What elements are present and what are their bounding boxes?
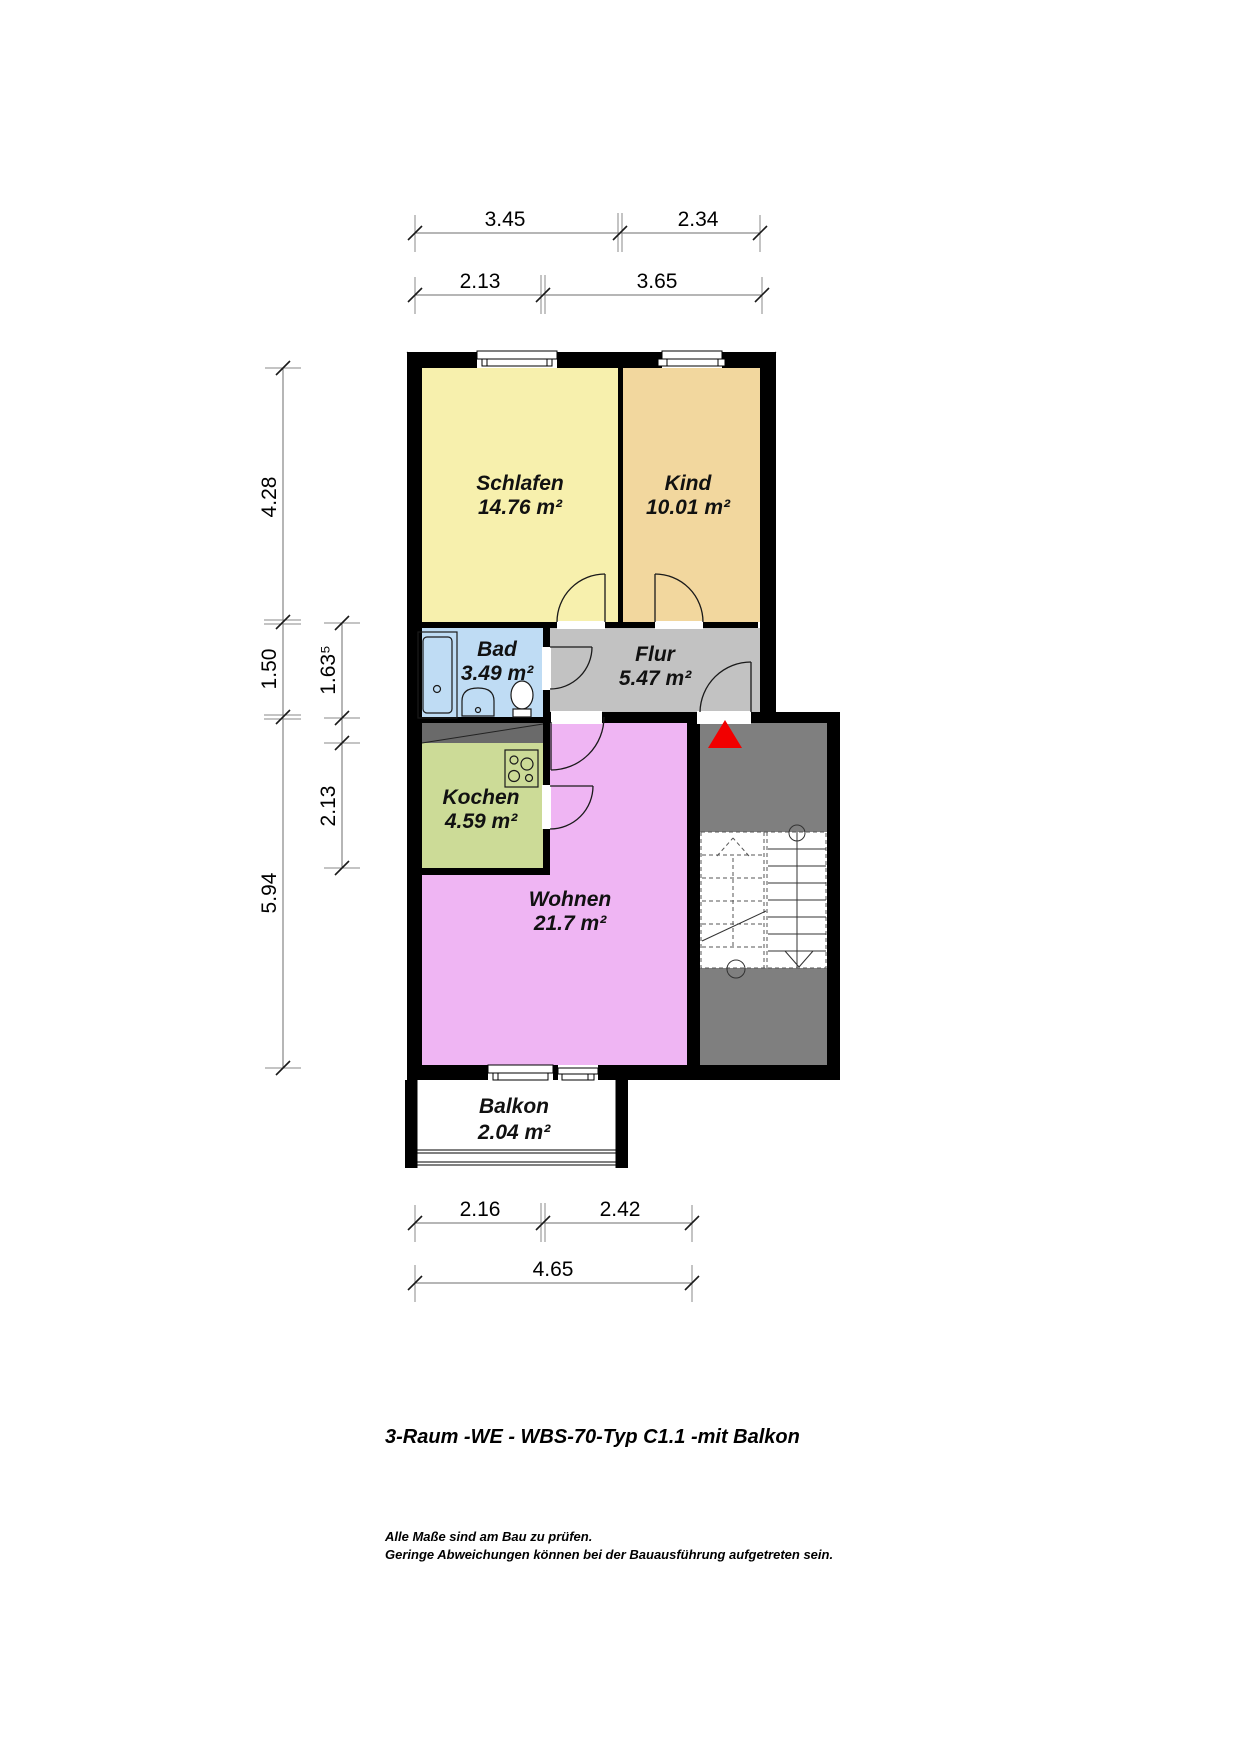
room-schlafen: [422, 368, 618, 622]
svg-text:2.13: 2.13: [460, 270, 501, 293]
svg-text:1.50: 1.50: [258, 649, 281, 690]
svg-text:2.16: 2.16: [460, 1198, 501, 1221]
window-kind: [658, 351, 725, 368]
label-kochen: Kochen: [442, 786, 519, 809]
dim-left-outer: 4.28 1.50 5.94: [258, 361, 301, 1075]
dim-left-inner: 1.63⁵ 2.13: [317, 616, 360, 875]
svg-text:3.45: 3.45: [485, 208, 526, 231]
label-flur: Flur: [635, 643, 676, 666]
dim-bottom-row1: 2.16 2.42: [408, 1198, 699, 1242]
label-kind: Kind: [665, 472, 713, 495]
balcony-window: [558, 1065, 598, 1080]
plan-title: 3-Raum -WE - WBS-70-Typ C1.1 -mit Balkon: [385, 1426, 800, 1448]
svg-text:5.94: 5.94: [258, 872, 281, 913]
dim-top-row1: 3.45 2.34: [408, 208, 767, 252]
room-kind: [623, 368, 760, 622]
svg-text:1.63⁵: 1.63⁵: [317, 645, 340, 695]
svg-text:4.65: 4.65: [533, 1258, 574, 1281]
svg-text:2.42: 2.42: [600, 1198, 641, 1221]
label-balkon: Balkon: [479, 1095, 549, 1118]
svg-text:2.13: 2.13: [317, 786, 340, 827]
area-schlafen: 14.76 m²: [478, 496, 563, 519]
duct-shaft: [422, 723, 543, 743]
label-schlafen: Schlafen: [476, 472, 564, 495]
svg-text:3.65: 3.65: [637, 270, 678, 293]
area-flur: 5.47 m²: [619, 667, 692, 690]
floor-plan-drawing: Schlafen 14.76 m² Kind 10.01 m² Bad 3.49…: [0, 0, 1240, 1754]
toilet-icon: [511, 681, 533, 717]
svg-text:2.34: 2.34: [678, 208, 719, 231]
window-schlafen: [477, 351, 557, 368]
stair-landing-lower: [700, 968, 827, 1065]
area-wohnen: 21.7 m²: [533, 912, 607, 935]
svg-text:4.28: 4.28: [258, 477, 281, 518]
note-line2: Geringe Abweichungen können bei der Baua…: [385, 1547, 833, 1562]
balcony-door: [488, 1065, 553, 1080]
floor-plan-page: Schlafen 14.76 m² Kind 10.01 m² Bad 3.49…: [0, 0, 1240, 1754]
area-bad: 3.49 m²: [461, 662, 534, 685]
area-balkon: 2.04 m²: [477, 1121, 551, 1144]
label-bad: Bad: [477, 638, 518, 661]
label-wohnen: Wohnen: [529, 888, 611, 911]
dim-top-row2: 2.13 3.65: [408, 270, 769, 314]
note-line1: Alle Maße sind am Bau zu prüfen.: [384, 1529, 592, 1544]
area-kochen: 4.59 m²: [444, 810, 518, 833]
area-kind: 10.01 m²: [646, 496, 731, 519]
dim-bottom-row2: 4.65: [408, 1258, 699, 1302]
stairwell: [700, 723, 827, 1065]
